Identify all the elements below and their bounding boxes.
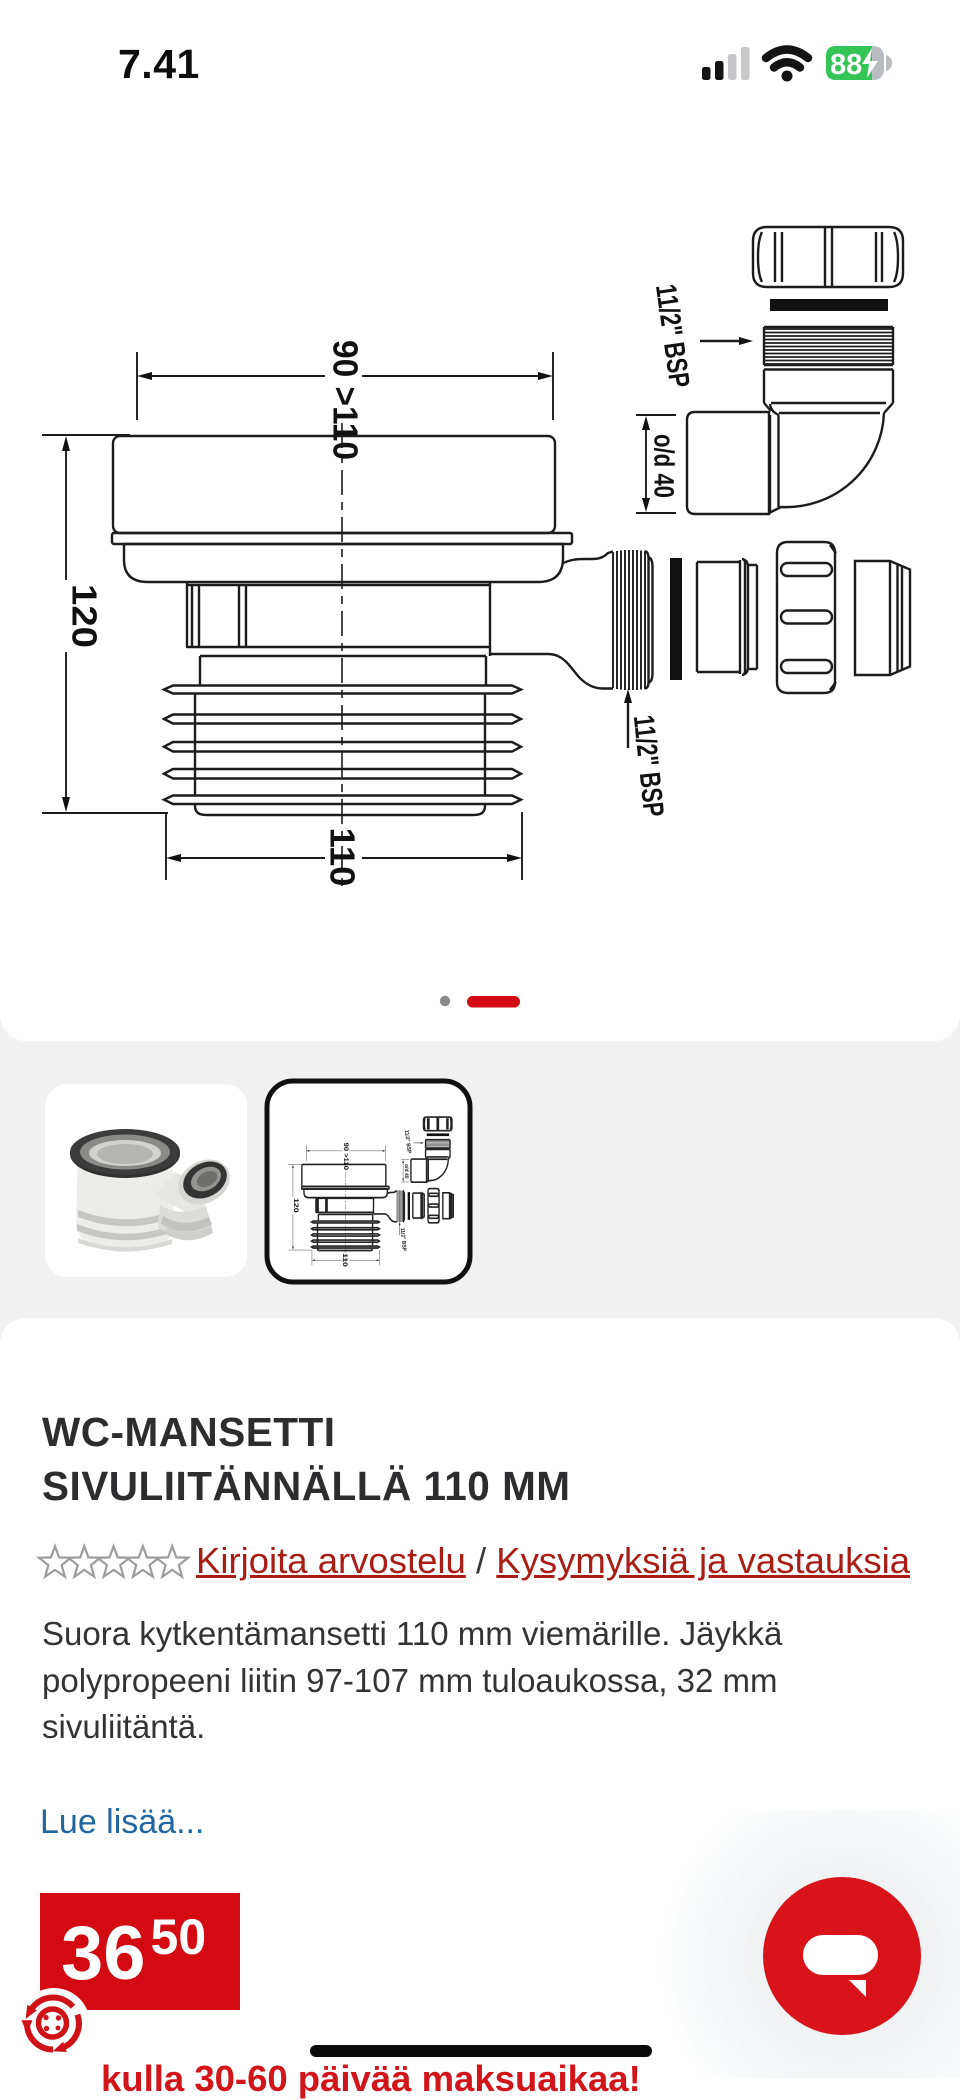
svg-text:88: 88	[830, 49, 862, 81]
